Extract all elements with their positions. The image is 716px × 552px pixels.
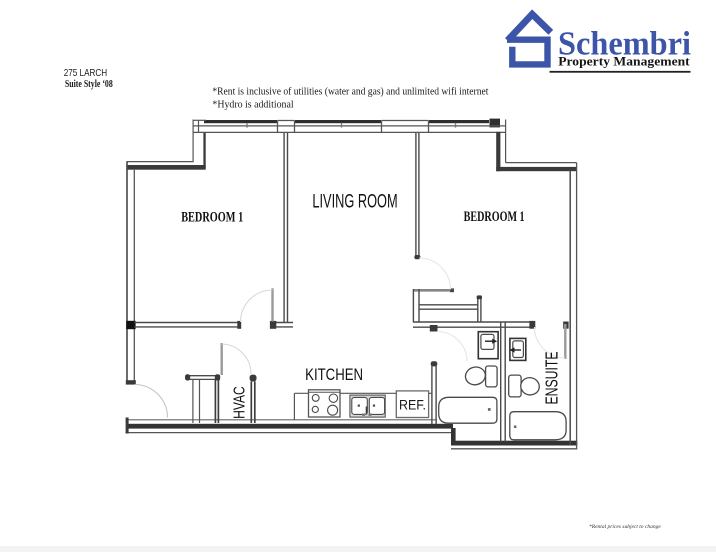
svg-text:HVAC: HVAC bbox=[231, 386, 249, 419]
svg-text:*Hydro is additional: *Hydro is additional bbox=[212, 99, 293, 110]
svg-text:ENSUITE: ENSUITE bbox=[542, 351, 562, 404]
svg-text:KITCHEN: KITCHEN bbox=[305, 366, 363, 385]
svg-text:275 LARCH: 275 LARCH bbox=[64, 67, 107, 78]
svg-text:BEDROOM 1: BEDROOM 1 bbox=[464, 208, 525, 224]
svg-text:Property Management: Property Management bbox=[558, 54, 690, 69]
svg-text:*Rent is inclusive of utilitie: *Rent is inclusive of utilities (water a… bbox=[212, 86, 488, 97]
svg-text:REF.: REF. bbox=[399, 397, 426, 413]
svg-text:LIVING ROOM: LIVING ROOM bbox=[312, 191, 397, 212]
svg-text:*Rental prices subject to chan: *Rental prices subject to change bbox=[589, 524, 661, 530]
svg-text:BEDROOM 1: BEDROOM 1 bbox=[181, 208, 243, 224]
svg-text:Suite Style ‘08: Suite Style ‘08 bbox=[65, 78, 113, 89]
